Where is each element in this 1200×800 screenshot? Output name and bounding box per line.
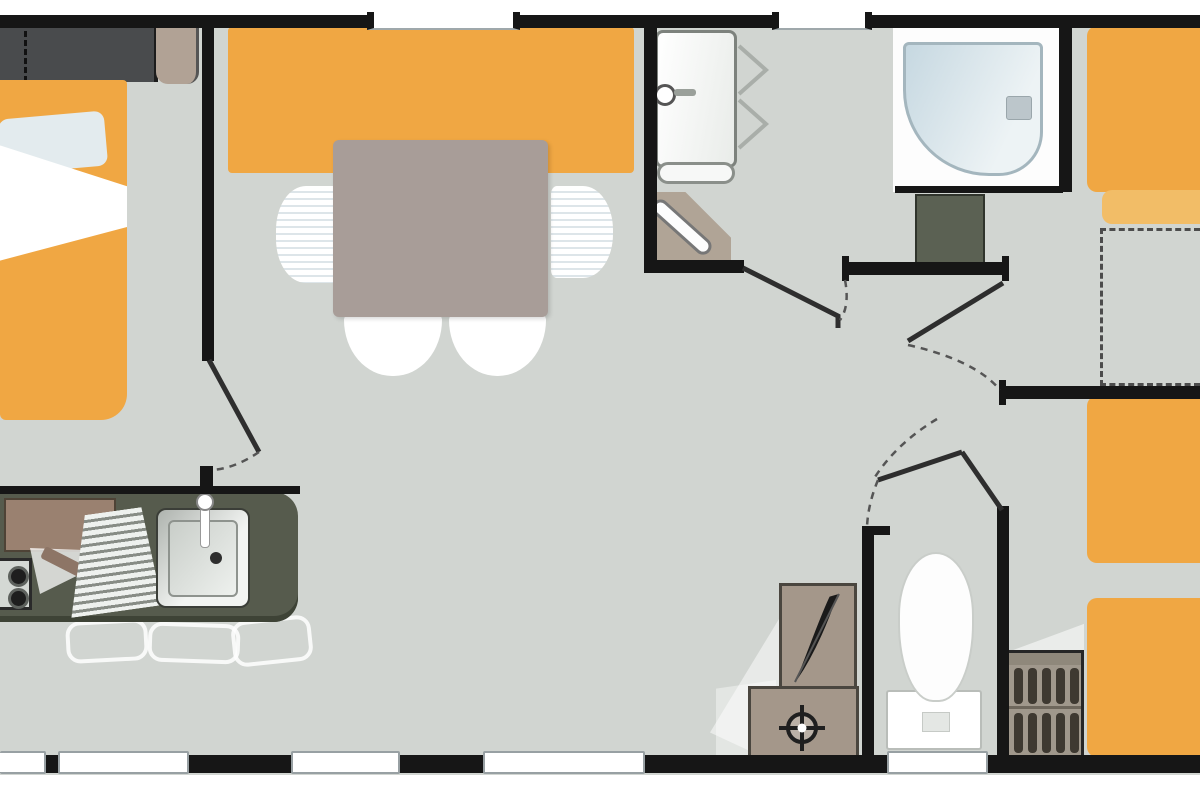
feather-symbol-line	[795, 594, 839, 682]
door-arc-hall-bedroom	[908, 345, 1000, 390]
door-leaf-wc-b	[962, 452, 1002, 510]
floor-plan	[0, 0, 1200, 800]
door-leaf-shower	[743, 268, 838, 328]
door-leaf-wc-a	[878, 452, 962, 480]
crosshair-symbol-center	[798, 724, 807, 733]
door-arc-wc	[867, 480, 878, 527]
door-arc-bedroom-left	[211, 452, 259, 470]
door-leaf-hall-bedroom	[908, 283, 1003, 341]
doors-and-symbols-layer	[0, 0, 1200, 800]
bifold-door-chevron-1	[739, 46, 766, 94]
bifold-door-chevron-2	[739, 100, 766, 148]
door-arc-shower	[840, 280, 847, 320]
door-leaf-bedroom-left	[209, 360, 259, 452]
